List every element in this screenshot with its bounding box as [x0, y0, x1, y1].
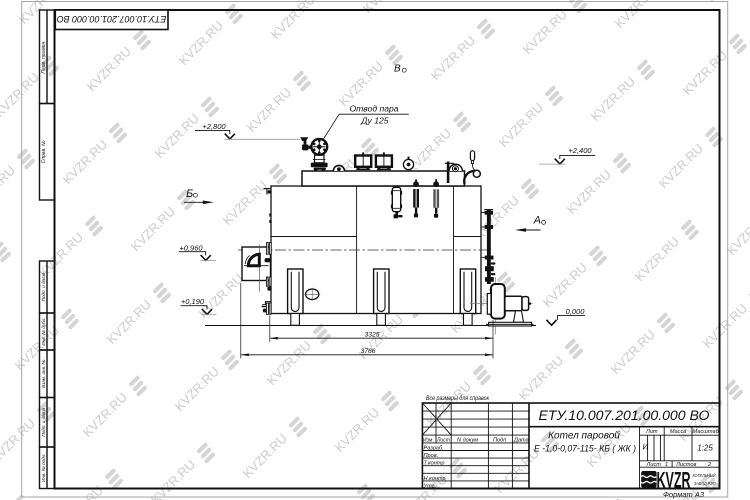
- svg-text:N докум: N докум: [457, 438, 478, 444]
- svg-text:KVZR.RU: KVZR.RU: [128, 204, 178, 254]
- svg-text:А: А: [533, 214, 541, 226]
- svg-text:Масса: Масса: [670, 429, 687, 435]
- svg-text:Справ. №: Справ. №: [41, 140, 47, 163]
- svg-text:Н.контр: Н.контр: [424, 476, 446, 482]
- svg-text:Котел паровой: Котел паровой: [548, 431, 620, 442]
- svg-text:KVZR.RU: KVZR.RU: [0, 416, 38, 466]
- svg-text:1:25: 1:25: [697, 444, 713, 453]
- svg-text:KVZR.RU: KVZR.RU: [540, 260, 590, 310]
- svg-text:KVZR.RU: KVZR.RU: [656, 141, 706, 191]
- svg-text:KVZR.RU: KVZR.RU: [108, 0, 158, 1]
- svg-text:KVZR.RU: KVZR.RU: [0, 70, 42, 120]
- svg-text:Подп. и дата: Подп. и дата: [41, 407, 46, 436]
- svg-text:KVZR.RU: KVZR.RU: [104, 297, 154, 347]
- svg-text:Ду 125: Ду 125: [360, 116, 388, 126]
- svg-text:KVZR.RU: KVZR.RU: [612, 0, 662, 31]
- svg-text:Все размеры для справок: Все размеры для справок: [426, 394, 490, 402]
- svg-text:Инв. № дубл.: Инв. № дубл.: [41, 317, 46, 345]
- svg-text:Изм: Изм: [423, 438, 433, 444]
- svg-text:KVZR.RU: KVZR.RU: [336, 59, 386, 109]
- svg-text:KVZR.RU: KVZR.RU: [360, 0, 410, 16]
- svg-text:И: И: [643, 443, 649, 452]
- svg-text:Перв. примен.: Перв. примен.: [41, 40, 47, 73]
- svg-text:КОТЕЛЬНЫЙ: КОТЕЛЬНЫЙ: [693, 471, 716, 479]
- svg-text:Подп. и дата: Подп. и дата: [41, 272, 46, 301]
- svg-text:KVZR.RU: KVZR.RU: [196, 271, 246, 321]
- svg-text:ЕТУ.10.007.201.00.000 ВО: ЕТУ.10.007.201.00.000 ВО: [539, 408, 711, 423]
- svg-text:Подп: Подп: [493, 438, 506, 444]
- svg-text:Утв.: Утв.: [423, 483, 437, 489]
- svg-text:KVZR.RU: KVZR.RU: [496, 100, 546, 150]
- svg-text:KVZR.RU: KVZR.RU: [564, 167, 614, 217]
- svg-text:KVZR.RU: KVZR.RU: [244, 85, 294, 135]
- svg-text:KVZR.RU: KVZR.RU: [704, 0, 750, 5]
- svg-text:KVZR.RU: KVZR.RU: [172, 364, 222, 414]
- svg-text:KVZR.RU: KVZR.RU: [744, 461, 750, 500]
- svg-text:3325: 3325: [364, 332, 379, 339]
- svg-text:Разраб.: Разраб.: [424, 445, 444, 451]
- svg-text:ЗАВОД РЭП: ЗАВОД РЭП: [694, 481, 716, 487]
- svg-text:KVZR.RU: KVZR.RU: [608, 327, 658, 377]
- svg-text:Е -1,0-0,07-115- КБ ( ЖК ): Е -1,0-0,07-115- КБ ( ЖК ): [534, 444, 636, 454]
- svg-text:KVZR.RU: KVZR.RU: [36, 230, 86, 280]
- svg-text:+2,400: +2,400: [568, 146, 592, 155]
- svg-text:+0,190: +0,190: [181, 297, 205, 306]
- svg-text:KVZR.RU: KVZR.RU: [520, 7, 570, 57]
- svg-text:Масштаб: Масштаб: [693, 429, 720, 435]
- svg-text:+0,960: +0,960: [179, 243, 203, 252]
- svg-text:KVZR.RU: KVZR.RU: [176, 18, 226, 68]
- svg-text:+2,800: +2,800: [202, 122, 226, 131]
- svg-text:ЕТУ.10.007.201.00.000 ВО: ЕТУ.10.007.201.00.000 ВО: [57, 14, 166, 24]
- svg-text:Инв. № подл.: Инв. № подл.: [41, 453, 46, 482]
- svg-text:В: В: [394, 63, 401, 74]
- svg-text:KVZR.RU: KVZR.RU: [428, 33, 478, 83]
- svg-text:Отвод пара: Отвод пара: [349, 104, 398, 114]
- svg-text:Дата: Дата: [513, 438, 529, 444]
- svg-text:KVZR.RU: KVZR.RU: [424, 379, 474, 429]
- svg-text:KVZR.RU: KVZR.RU: [516, 353, 566, 403]
- svg-text:KVZR.RU: KVZR.RU: [264, 338, 314, 388]
- svg-text:Лист: Лист: [436, 438, 450, 444]
- svg-text:KVZR: KVZR: [657, 467, 691, 492]
- svg-text:0,000: 0,000: [566, 307, 586, 316]
- svg-text:KVZR.RU: KVZR.RU: [84, 44, 134, 94]
- svg-text:KVZR.RU: KVZR.RU: [148, 457, 198, 500]
- svg-text:KVZR.RU: KVZR.RU: [152, 111, 202, 161]
- svg-text:KVZR.RU: KVZR.RU: [332, 405, 382, 455]
- svg-text:Т.контр: Т.контр: [424, 461, 445, 467]
- svg-text:KVZR.RU: KVZR.RU: [268, 0, 318, 42]
- svg-text:KVZR.RU: KVZR.RU: [588, 74, 638, 124]
- svg-text:3766: 3766: [360, 348, 375, 355]
- svg-text:KVZR.RU: KVZR.RU: [0, 163, 18, 213]
- svg-text:KVZR.RU: KVZR.RU: [60, 137, 110, 187]
- svg-text:KVZR.RU: KVZR.RU: [700, 301, 750, 351]
- svg-text:Б: Б: [186, 188, 193, 200]
- svg-text:Пров.: Пров.: [424, 453, 439, 459]
- svg-text:KVZR.RU: KVZR.RU: [240, 431, 290, 481]
- svg-text:Взам. инв. №: Взам. инв. №: [41, 359, 46, 387]
- svg-text:KVZR.RU: KVZR.RU: [680, 48, 730, 98]
- svg-text:KVZR.RU: KVZR.RU: [80, 390, 130, 440]
- svg-text:Формат А3: Формат А3: [663, 490, 705, 499]
- svg-text:Лит: Лит: [645, 429, 658, 435]
- svg-text:KVZR.RU: KVZR.RU: [632, 234, 682, 284]
- svg-text:KVZR.RU: KVZR.RU: [220, 178, 270, 228]
